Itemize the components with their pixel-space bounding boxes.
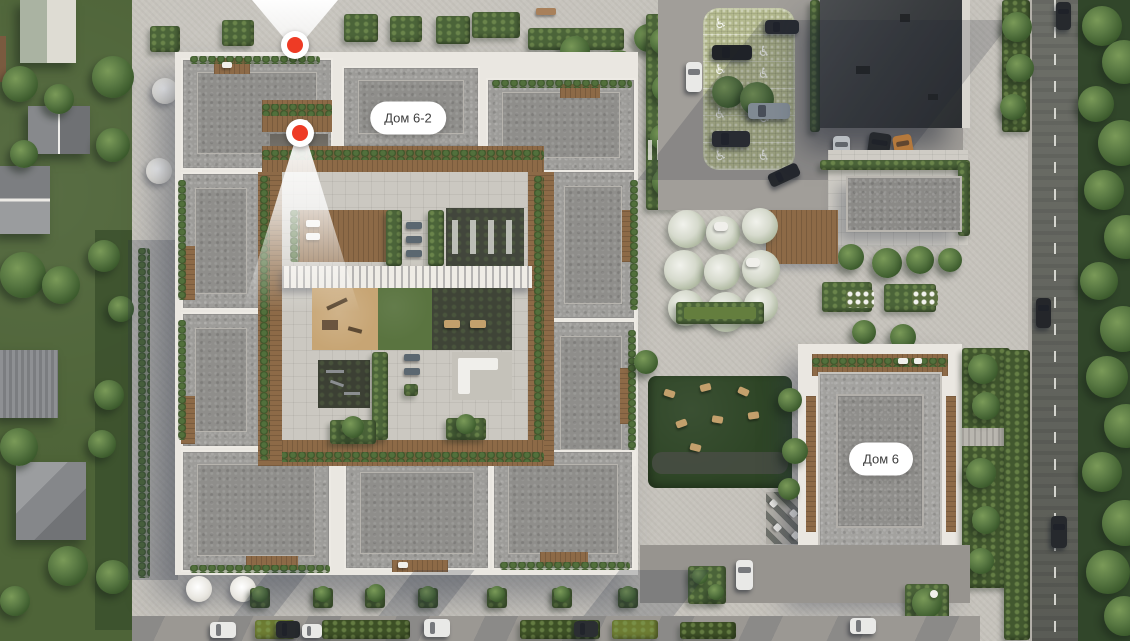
terrace-lounger <box>222 62 232 68</box>
tree <box>42 266 80 304</box>
label-house-6-2[interactable]: Дом 6-2 <box>370 102 446 135</box>
tree <box>1082 6 1122 46</box>
tree <box>966 458 996 488</box>
bench <box>406 236 422 243</box>
tree <box>2 66 38 102</box>
car <box>574 621 598 637</box>
shrub-row <box>290 210 300 262</box>
tree <box>1086 550 1130 594</box>
gravel-path <box>652 452 788 474</box>
camera-marker-north[interactable] <box>281 31 309 59</box>
street-hedge <box>680 622 736 639</box>
bench <box>406 250 422 257</box>
street-hedge <box>322 620 410 639</box>
tree <box>96 128 130 162</box>
terrace-lounger <box>898 358 908 364</box>
building-shadow <box>128 240 178 580</box>
bench <box>404 354 420 361</box>
bench <box>470 320 486 328</box>
tree <box>94 380 124 410</box>
courtyard-hedge <box>404 384 418 396</box>
ribbed-roof-house <box>0 350 58 418</box>
hedge-planter <box>472 12 520 38</box>
shrub-row <box>190 565 330 573</box>
tree <box>1078 86 1114 122</box>
label-house-6[interactable]: Дом 6 <box>849 443 913 476</box>
tree <box>634 350 658 374</box>
courtyard-hedge <box>428 210 444 266</box>
garden-steps <box>962 428 1010 446</box>
blossom-tree <box>742 250 780 288</box>
playground-sand <box>312 288 378 350</box>
blossom-tree <box>668 210 706 248</box>
blossom-tree <box>664 250 704 290</box>
flower-bed <box>846 290 874 308</box>
terrace-lounger <box>398 562 408 568</box>
seating-area <box>452 352 512 400</box>
bench <box>404 368 420 375</box>
shrub-row <box>628 330 636 450</box>
roof-terrace <box>946 396 956 532</box>
tree <box>1080 262 1118 300</box>
tree <box>938 248 962 272</box>
car <box>302 624 322 638</box>
tree <box>906 246 934 274</box>
roof-wing-south <box>344 458 490 570</box>
tree <box>367 584 385 602</box>
shrub-row <box>812 358 948 367</box>
car <box>1056 2 1071 30</box>
tree <box>1084 170 1124 210</box>
tree <box>554 586 570 602</box>
shrub-row <box>178 320 186 440</box>
courtyard-hedge <box>386 210 402 266</box>
bench <box>406 222 422 229</box>
car <box>1051 516 1067 548</box>
car <box>850 618 876 634</box>
shrub-row <box>534 176 544 460</box>
tree <box>92 56 134 98</box>
patio-umbrella <box>186 576 212 602</box>
tree <box>0 428 38 466</box>
tree <box>1082 452 1122 492</box>
marker-red-dot <box>292 125 308 141</box>
tree <box>778 388 802 412</box>
tree <box>972 392 1000 420</box>
car <box>424 619 450 637</box>
shrub-row <box>492 80 632 88</box>
hedge-bed <box>676 302 764 324</box>
tree <box>972 506 1000 534</box>
tree <box>88 430 116 458</box>
car <box>686 62 702 92</box>
blossom-tree <box>742 208 778 244</box>
hedge-planter <box>344 14 378 42</box>
tree <box>88 240 120 272</box>
tree <box>315 586 331 602</box>
patio-umbrella <box>146 158 172 184</box>
shrub-row <box>262 452 544 462</box>
tree <box>968 548 994 574</box>
roof-terrace <box>806 396 816 532</box>
tree <box>782 438 808 464</box>
tree <box>456 414 476 434</box>
hedge-row <box>820 160 970 170</box>
tree <box>0 586 30 616</box>
planting-bed <box>446 208 524 266</box>
tree <box>44 84 74 114</box>
tree <box>10 140 38 168</box>
shrub-row <box>262 150 544 160</box>
small-flat-roof-building <box>846 176 962 232</box>
roof-wing-southwest <box>181 450 331 572</box>
roadside-hedge <box>1004 350 1030 640</box>
deck-lounger <box>306 220 320 227</box>
shrub-row <box>178 180 186 300</box>
flat-roof-building <box>20 0 76 63</box>
car <box>1036 298 1051 328</box>
camera-marker-courtyard[interactable] <box>286 119 314 147</box>
bench <box>444 320 460 328</box>
blossom-tree <box>704 254 740 290</box>
fitness-area <box>318 360 370 408</box>
gable-roof-house <box>0 166 50 234</box>
masterplan-stage: ♿ ♿ ♿ ♿ ♿ ♿ ♿ ♿ <box>0 0 1130 641</box>
tree <box>342 416 364 438</box>
planting-bed <box>432 288 512 350</box>
shrub-row <box>630 180 638 310</box>
shrub-row <box>500 562 630 570</box>
cafe-table <box>930 590 938 598</box>
hip-roof-house <box>16 462 86 540</box>
shrub-row <box>262 104 332 116</box>
tree <box>778 478 800 500</box>
pergola <box>282 266 532 288</box>
tree-shadow <box>375 570 474 620</box>
tree <box>0 252 46 298</box>
tree <box>48 546 88 586</box>
tree <box>1006 54 1034 82</box>
plaza-deck <box>766 210 838 264</box>
tree <box>96 560 130 594</box>
shrub-row <box>260 176 270 460</box>
accessible-parking-icon: ♿ <box>713 15 728 31</box>
car <box>736 560 753 590</box>
tree <box>852 320 876 344</box>
tree <box>1000 94 1026 120</box>
bench <box>536 8 556 15</box>
courtyard-lawn <box>378 288 432 350</box>
deck-lounger <box>306 233 320 240</box>
marker-red-dot <box>287 37 303 53</box>
tree <box>489 586 505 602</box>
tree <box>872 248 902 278</box>
terrace-lounger <box>914 358 922 364</box>
hedge-planter <box>222 20 254 46</box>
tree <box>1002 12 1032 42</box>
hedge-planter <box>150 26 180 52</box>
tree <box>1086 356 1128 398</box>
tree <box>708 584 724 600</box>
hedge-planter <box>436 16 470 44</box>
hedge-planter <box>390 16 422 42</box>
car <box>210 622 236 638</box>
tree <box>968 354 998 384</box>
cafe-table <box>714 222 728 231</box>
tree <box>838 244 864 270</box>
car <box>276 621 300 638</box>
cafe-table <box>746 258 760 267</box>
flower-bed <box>912 290 938 306</box>
street-hedge <box>612 620 658 639</box>
